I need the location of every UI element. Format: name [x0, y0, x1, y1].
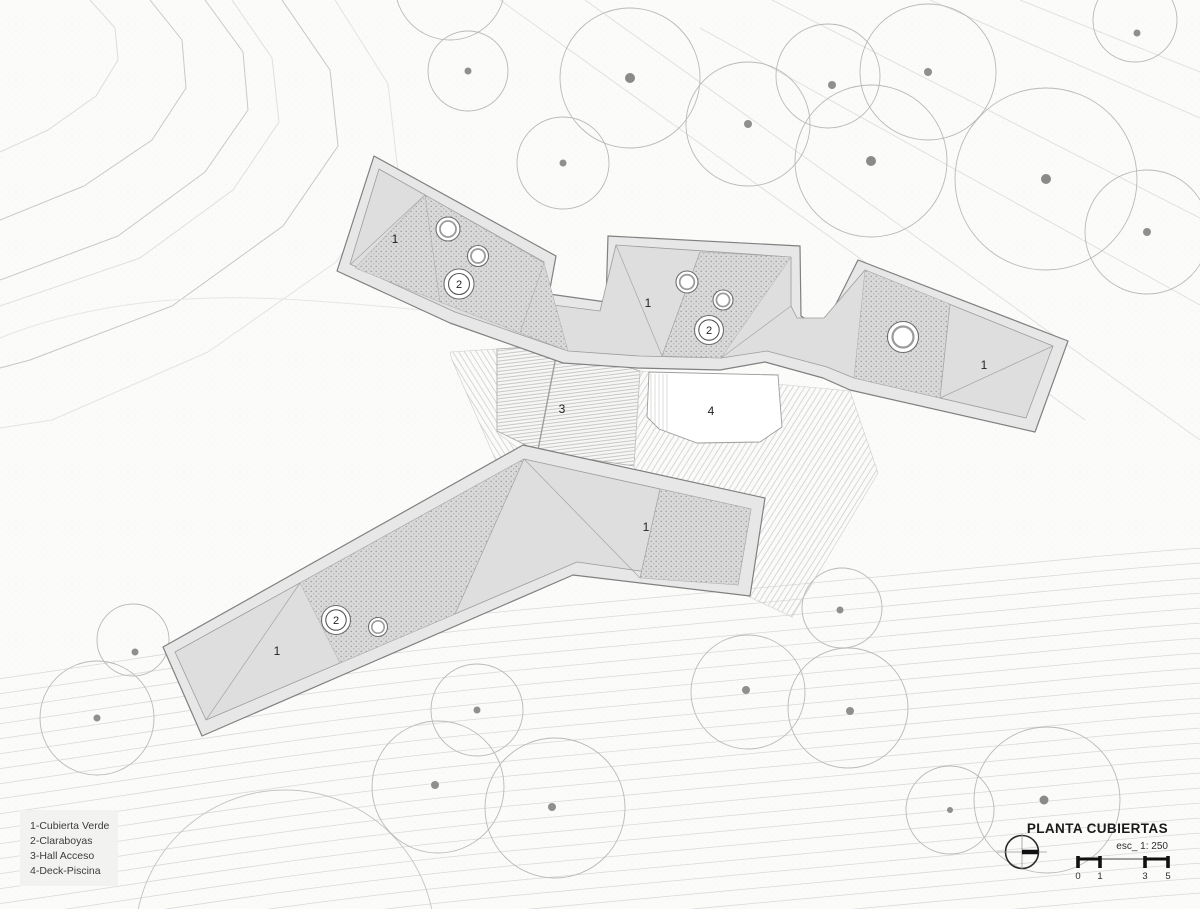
skylight	[676, 271, 698, 293]
site-plan-canvas: 2 2 2 1 1 1 1 1 3 4 1-Cubierta Verde 2-C…	[0, 0, 1200, 909]
roof-plan-drawing: 2 2 2 1 1 1 1 1 3 4 1-Cubierta Verde 2-C…	[0, 0, 1200, 909]
scale-tick-label: 3	[1142, 871, 1147, 882]
legend-item: 4-Deck-Piscina	[30, 865, 101, 877]
green-roof-label: 1	[981, 358, 988, 372]
skylight-labeled: 2	[695, 316, 724, 345]
scale-tick-label: 0	[1075, 871, 1080, 882]
scale-tick-label: 1	[1097, 871, 1102, 882]
skylight-labeled: 2	[444, 269, 474, 299]
green-roof-label: 1	[645, 296, 652, 310]
skylight-number: 2	[456, 279, 462, 291]
skylight	[713, 290, 733, 310]
scale-tick-label: 5	[1165, 871, 1170, 882]
green-roof-label: 1	[643, 520, 650, 534]
skylight-number: 2	[706, 325, 712, 337]
skylight	[369, 618, 388, 637]
skylight	[468, 246, 489, 267]
pool-deck-area	[647, 372, 782, 443]
skylight	[888, 322, 919, 353]
hall-label: 3	[559, 402, 566, 416]
legend-item: 3-Hall Acceso	[30, 850, 94, 862]
green-roof-label: 1	[274, 644, 281, 658]
skylight	[436, 217, 460, 241]
skylight-number: 2	[333, 615, 339, 627]
legend-item: 1-Cubierta Verde	[30, 820, 110, 832]
green-roof-label: 1	[392, 232, 399, 246]
drawing-scale-note: esc_ 1: 250	[1116, 841, 1168, 852]
deck-label: 4	[708, 404, 715, 418]
drawing-title: PLANTA CUBIERTAS	[1027, 821, 1168, 836]
legend-item: 2-Claraboyas	[30, 835, 92, 847]
legend: 1-Cubierta Verde 2-Claraboyas 3-Hall Acc…	[20, 810, 118, 886]
skylight-labeled: 2	[322, 606, 351, 635]
